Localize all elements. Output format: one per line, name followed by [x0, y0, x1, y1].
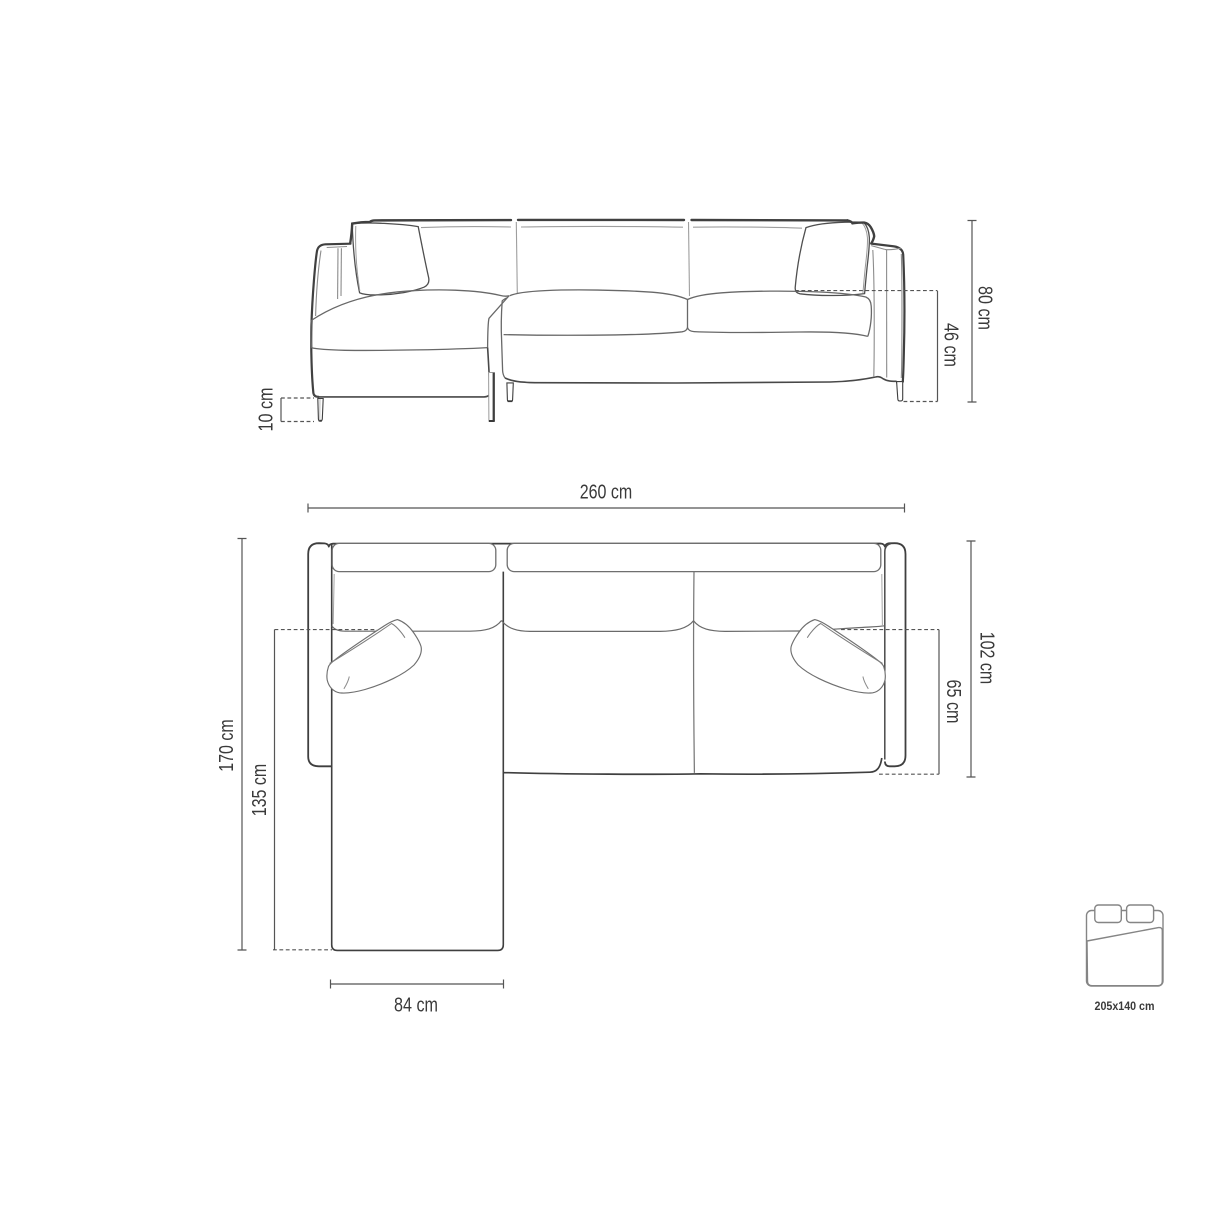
svg-text:46 cm: 46 cm	[940, 323, 962, 367]
svg-text:102 cm: 102 cm	[976, 632, 998, 685]
svg-text:84 cm: 84 cm	[394, 995, 438, 1017]
svg-text:205x140 cm: 205x140 cm	[1095, 999, 1155, 1013]
svg-text:10 cm: 10 cm	[256, 388, 278, 432]
svg-text:65 cm: 65 cm	[942, 680, 964, 724]
svg-text:135 cm: 135 cm	[249, 764, 271, 817]
svg-text:80 cm: 80 cm	[974, 286, 996, 330]
svg-text:170 cm: 170 cm	[216, 719, 238, 772]
svg-text:260 cm: 260 cm	[580, 482, 633, 504]
